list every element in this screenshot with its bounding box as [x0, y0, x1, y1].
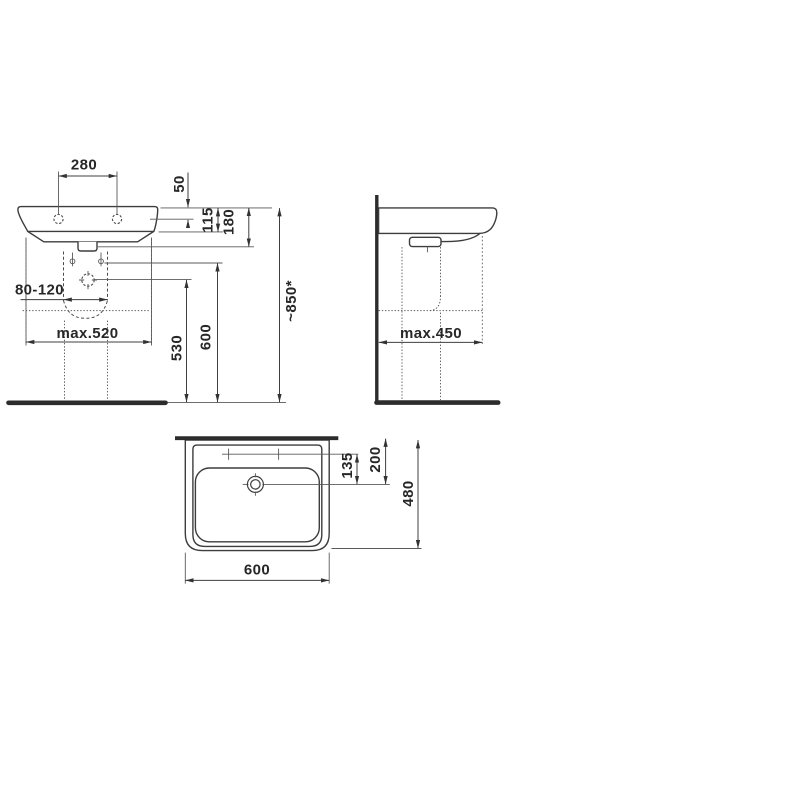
side-view: max.450 — [377, 195, 499, 403]
dim-drain-center-height-label: 530 — [169, 335, 186, 361]
basin-plan-outline — [185, 440, 329, 551]
dim-tap-spacing: 280 — [59, 157, 118, 177]
dim-max-width-label: max.520 — [56, 325, 118, 342]
trap-dotted-side — [379, 248, 482, 400]
dim-basin-body-height: 180 — [221, 208, 249, 247]
dim-rim-height: ~850* — [280, 208, 301, 402]
drain-outlet-front — [79, 271, 97, 289]
dim-rim-height-label: ~850* — [283, 280, 300, 322]
dim-rim-to-underside: 115 — [200, 207, 219, 232]
dim-max-depth: max.450 — [379, 325, 483, 342]
dim-basin-body-height-label: 180 — [221, 209, 238, 235]
dim-drain-center-height: 530 — [169, 280, 187, 402]
dim-max-width: max.520 — [26, 325, 152, 342]
trap-pipe-dotted — [23, 311, 151, 400]
fixing-screw-left — [70, 253, 75, 267]
washbasin-dimension-drawing: 280 50 115 180 80-120 max.520 — [0, 0, 800, 800]
front-view — [9, 207, 166, 403]
drain-box-side — [410, 237, 442, 246]
dim-basin-depth-label: 480 — [400, 480, 417, 506]
front-view-dimensions: 280 50 115 180 80-120 max.520 — [15, 157, 300, 403]
basin-front-body — [18, 207, 158, 232]
dim-drain-range: 80-120 — [15, 282, 108, 300]
dim-fixing-holes-height-label: 600 — [198, 324, 215, 350]
dim-max-depth-label: max.450 — [400, 325, 462, 342]
extension-lines-plan — [185, 549, 421, 584]
fixing-screw-right — [99, 253, 104, 267]
dim-tap-holes-to-center: 135 — [339, 452, 357, 484]
plan-view: 135 200 480 600 — [175, 438, 422, 583]
dim-basin-width-label: 600 — [244, 562, 270, 579]
dim-rim-to-underside-label: 115 — [200, 207, 217, 232]
basin-side-skirt — [442, 233, 481, 241]
dim-wall-to-tap-center-label: 200 — [367, 446, 384, 472]
dim-tap-spacing-label: 280 — [71, 157, 97, 174]
dim-wall-to-tap-center: 200 — [367, 439, 386, 485]
basin-front-skirt — [28, 231, 154, 241]
dim-rim-to-tap-hole-label: 50 — [171, 175, 188, 193]
dim-basin-depth: 480 — [400, 440, 418, 548]
dim-basin-width: 600 — [185, 562, 329, 581]
drain-box-front — [78, 242, 97, 251]
technical-drawing-canvas: 280 50 115 180 80-120 max.520 — [0, 0, 800, 800]
dim-fixing-holes-height: 600 — [198, 263, 218, 402]
basin-side-profile — [379, 208, 497, 234]
dim-tap-holes-to-center-label: 135 — [339, 452, 356, 478]
dim-drain-range-label: 80-120 — [15, 282, 64, 299]
